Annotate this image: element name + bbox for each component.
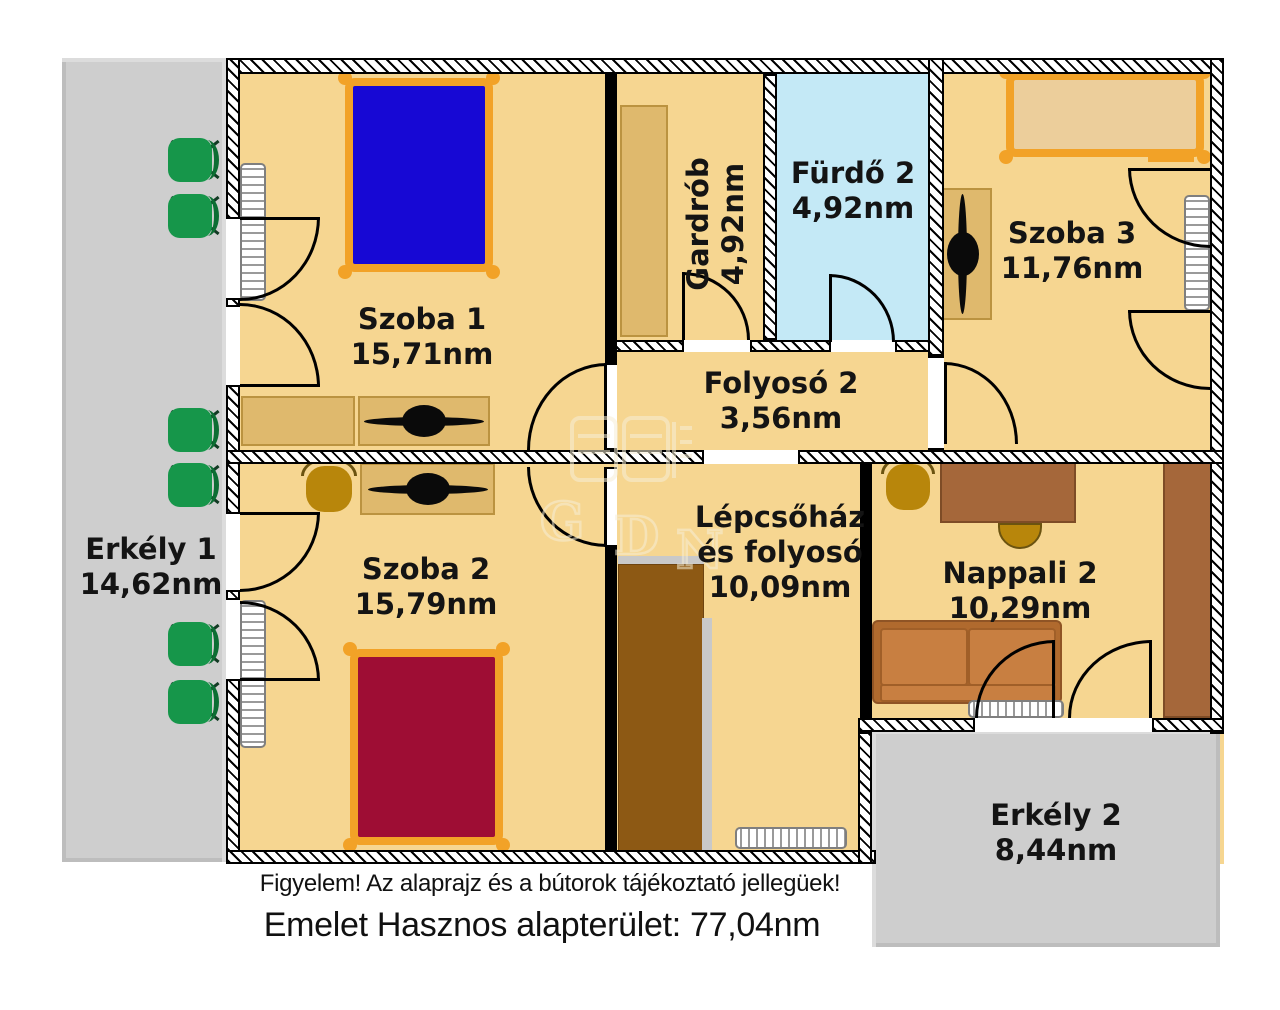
room-area: 15,71nm [351,337,494,372]
room-name: és folyosó [695,535,865,570]
chair-szoba2 [306,466,352,512]
bed-szoba2 [350,649,503,845]
room-name: Erkély 1 [80,532,223,567]
bed-szoba1 [345,78,493,272]
door-opening [928,356,944,450]
label-lepcsohaz: Lépcsőház és folyosó 10,09nm [695,500,865,605]
bed-szoba3 [1006,72,1204,157]
disclaimer-text: Figyelem! Az alaprajz és a bútorok tájék… [260,870,841,898]
wardrobe-nappali [1163,462,1213,718]
room-area: 4,92nm [716,157,751,290]
green-chair [168,620,222,668]
wall-outer-top [226,58,1224,74]
room-name: Szoba 3 [1001,216,1144,251]
room-name: Fürdő 2 [791,156,915,191]
wall-outer-right [1210,58,1224,734]
door-opening [973,718,1154,732]
label-szoba3: Szoba 3 11,76nm [1001,216,1144,286]
svg-text:G: G [540,492,584,553]
green-chair [168,678,222,726]
green-chair [168,136,222,184]
desk-nappali [940,460,1076,523]
door-opening [226,512,240,592]
room-area: 10,09nm [695,570,865,605]
room-name: Lépcsőház [695,500,865,535]
room-name: Folyosó 2 [704,366,859,401]
room-area: 15,79nm [355,587,498,622]
door-opening [682,340,752,352]
door-opening [226,305,240,387]
label-erkely2: Erkély 2 8,44nm [990,798,1121,868]
green-chair [168,461,222,509]
label-erkely1: Erkély 1 14,62nm [80,532,223,602]
room-name: Szoba 1 [351,302,494,337]
room-name: Gardrób [681,157,716,290]
wall-gardrob-furdo [763,74,777,340]
chair-nappali-top [886,464,930,510]
room-name: Erkély 2 [990,798,1121,833]
stairs-rail [702,618,712,850]
wall-lepcso-erkely2 [858,732,872,864]
floor-plan: G D N Szoba 1 15,71nm Szoba 2 15,79nm Sz… [0,0,1280,1010]
svg-text:D: D [614,506,659,567]
room-area: 10,29nm [942,591,1097,626]
room-area: 14,62nm [80,567,223,602]
label-gardrob: Gardrób 4,92nm [681,157,751,290]
bed-szoba3-frame-bar [1148,155,1194,162]
label-folyoso2: Folyosó 2 3,56nm [704,366,859,436]
wall-outer-bottom [226,850,876,864]
room-area: 11,76nm [1001,251,1144,286]
label-szoba2: Szoba 2 15,79nm [355,552,498,622]
sofa-cushion [880,628,968,686]
room-area: 3,56nm [704,401,859,436]
wall-center-vertical-upper [605,74,617,363]
total-area-text: Emelet Hasznos alapterület: 77,04nm [264,906,820,945]
label-szoba1: Szoba 1 15,71nm [351,302,494,372]
wall-furdo-szoba3 [928,58,944,356]
room-name: Szoba 2 [355,552,498,587]
door-opening [226,217,240,300]
room-area: 4,92nm [791,191,915,226]
wardrobe-gardrob [620,105,668,337]
label-nappali2: Nappali 2 10,29nm [942,556,1097,626]
room-name: Nappali 2 [942,556,1097,591]
radiator [735,827,847,849]
green-chair [168,406,222,454]
green-chair [168,192,222,240]
desk-szoba1-left [241,396,355,446]
label-furdo2: Fürdő 2 4,92nm [791,156,915,226]
door-opening [226,598,240,681]
stairs [618,564,704,852]
room-area: 8,44nm [990,833,1121,868]
